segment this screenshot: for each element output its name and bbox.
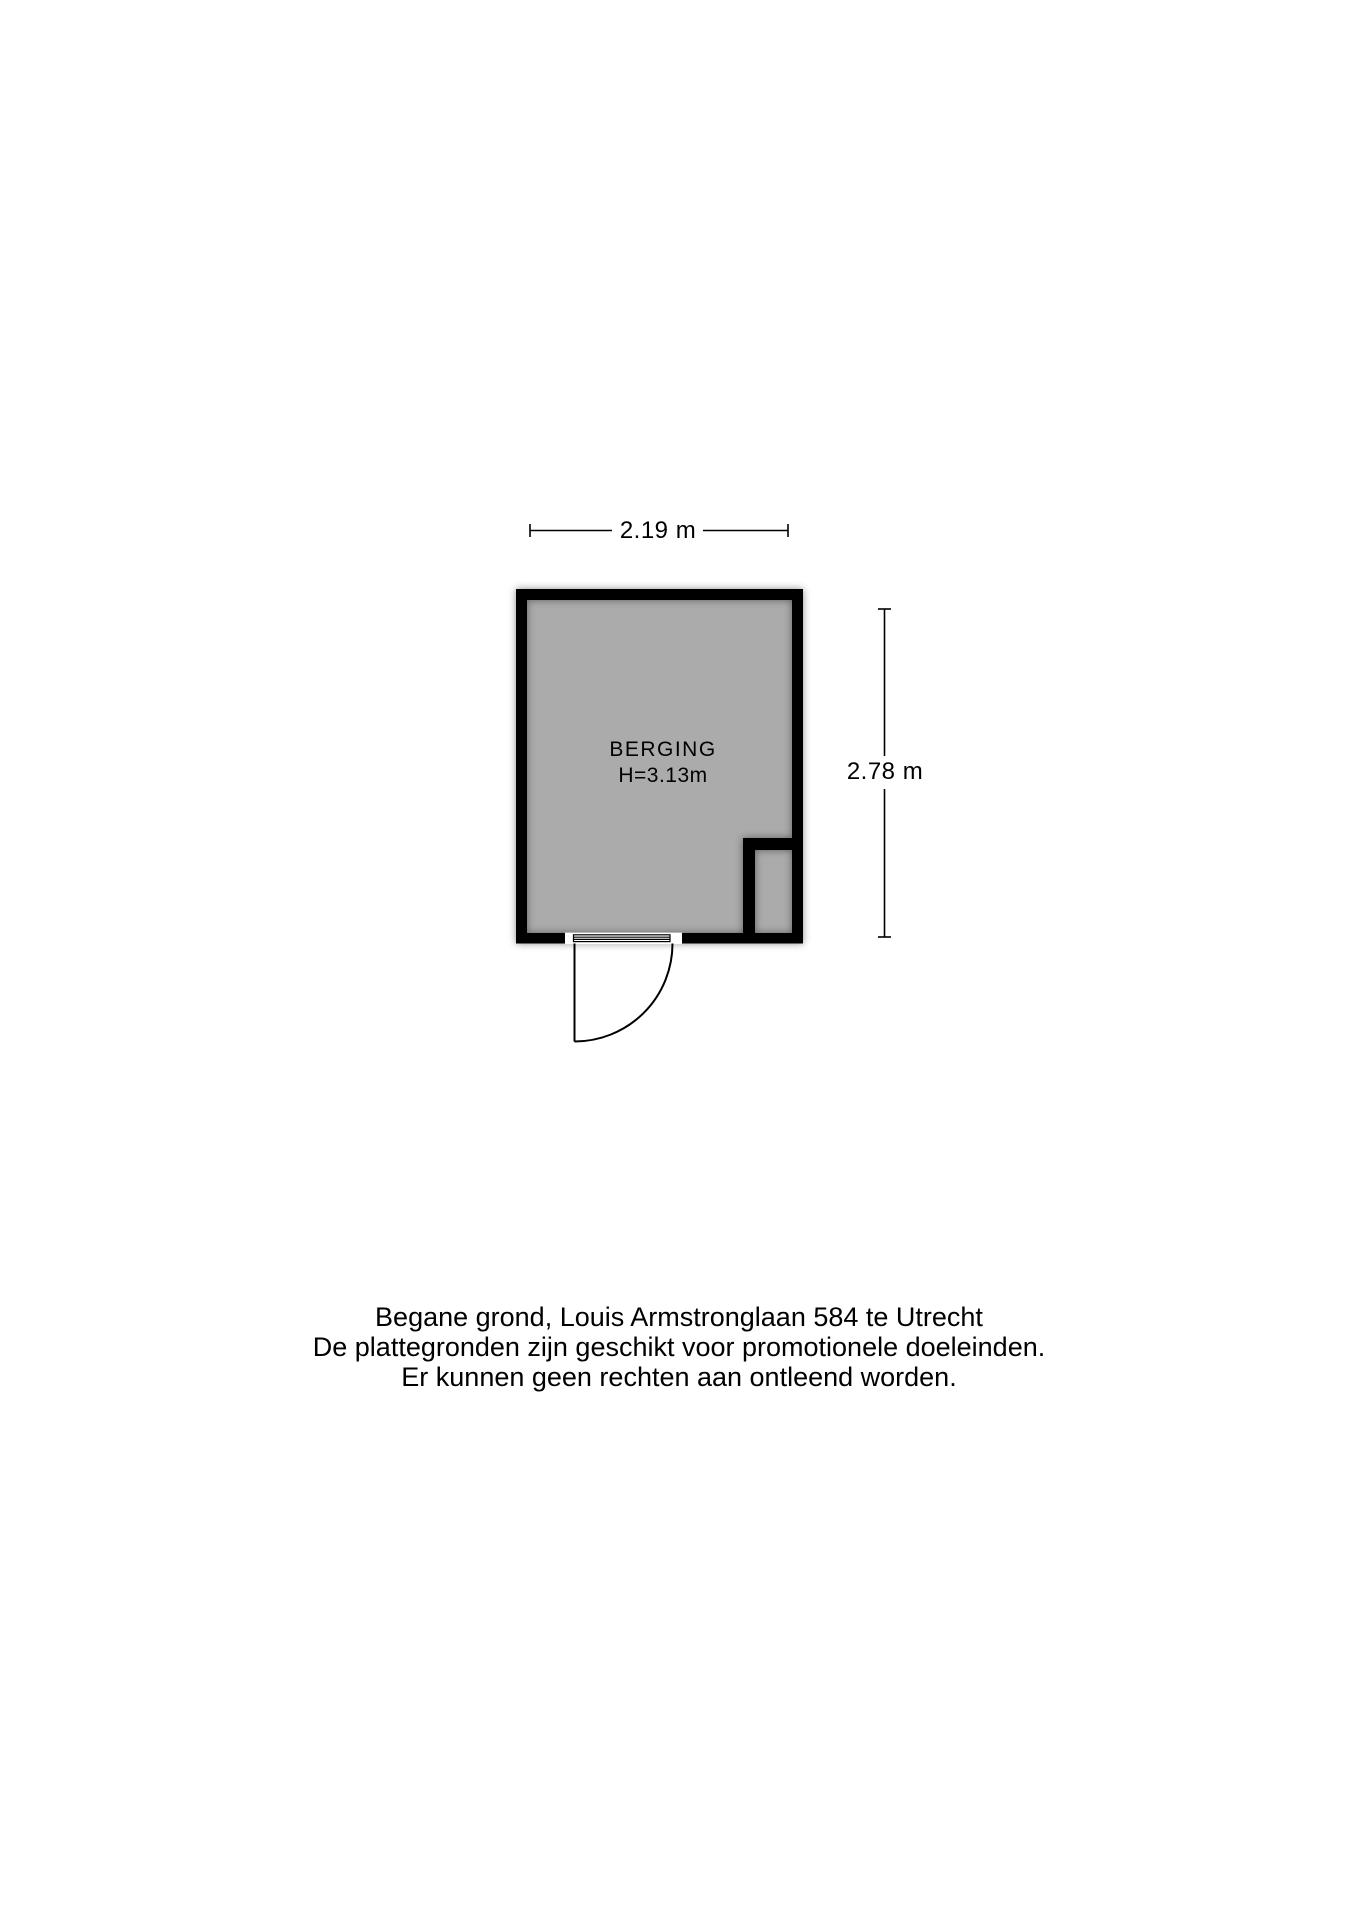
floorplan-page: 2.19 m 2.78 m BERGING H=3.13m Begane gro… (0, 0, 1358, 1920)
room-ceiling-height-label: H=3.13m (530, 763, 796, 788)
footer-line-rights: Er kunnen geen rechten aan ontleend word… (0, 1362, 1358, 1392)
corner-compartment-wall-horizontal (743, 838, 792, 850)
room-name-label: BERGING (530, 737, 796, 763)
corner-compartment-wall-vertical (743, 838, 755, 933)
room-label-block: BERGING H=3.13m (530, 737, 796, 788)
height-dimension-label: 2.78 m (843, 758, 927, 786)
footer-line-address: Begane grond, Louis Armstronglaan 584 te… (0, 1302, 1358, 1332)
width-dimension-label: 2.19 m (616, 517, 700, 545)
door-threshold (574, 935, 671, 942)
door (575, 944, 673, 1042)
footer-line-promotional: De plattegronden zijn geschikt voor prom… (0, 1332, 1358, 1362)
floorplan-drawing (0, 0, 1358, 1920)
door-swing-arc (575, 944, 673, 1042)
footer-disclaimer: Begane grond, Louis Armstronglaan 584 te… (0, 1302, 1358, 1392)
